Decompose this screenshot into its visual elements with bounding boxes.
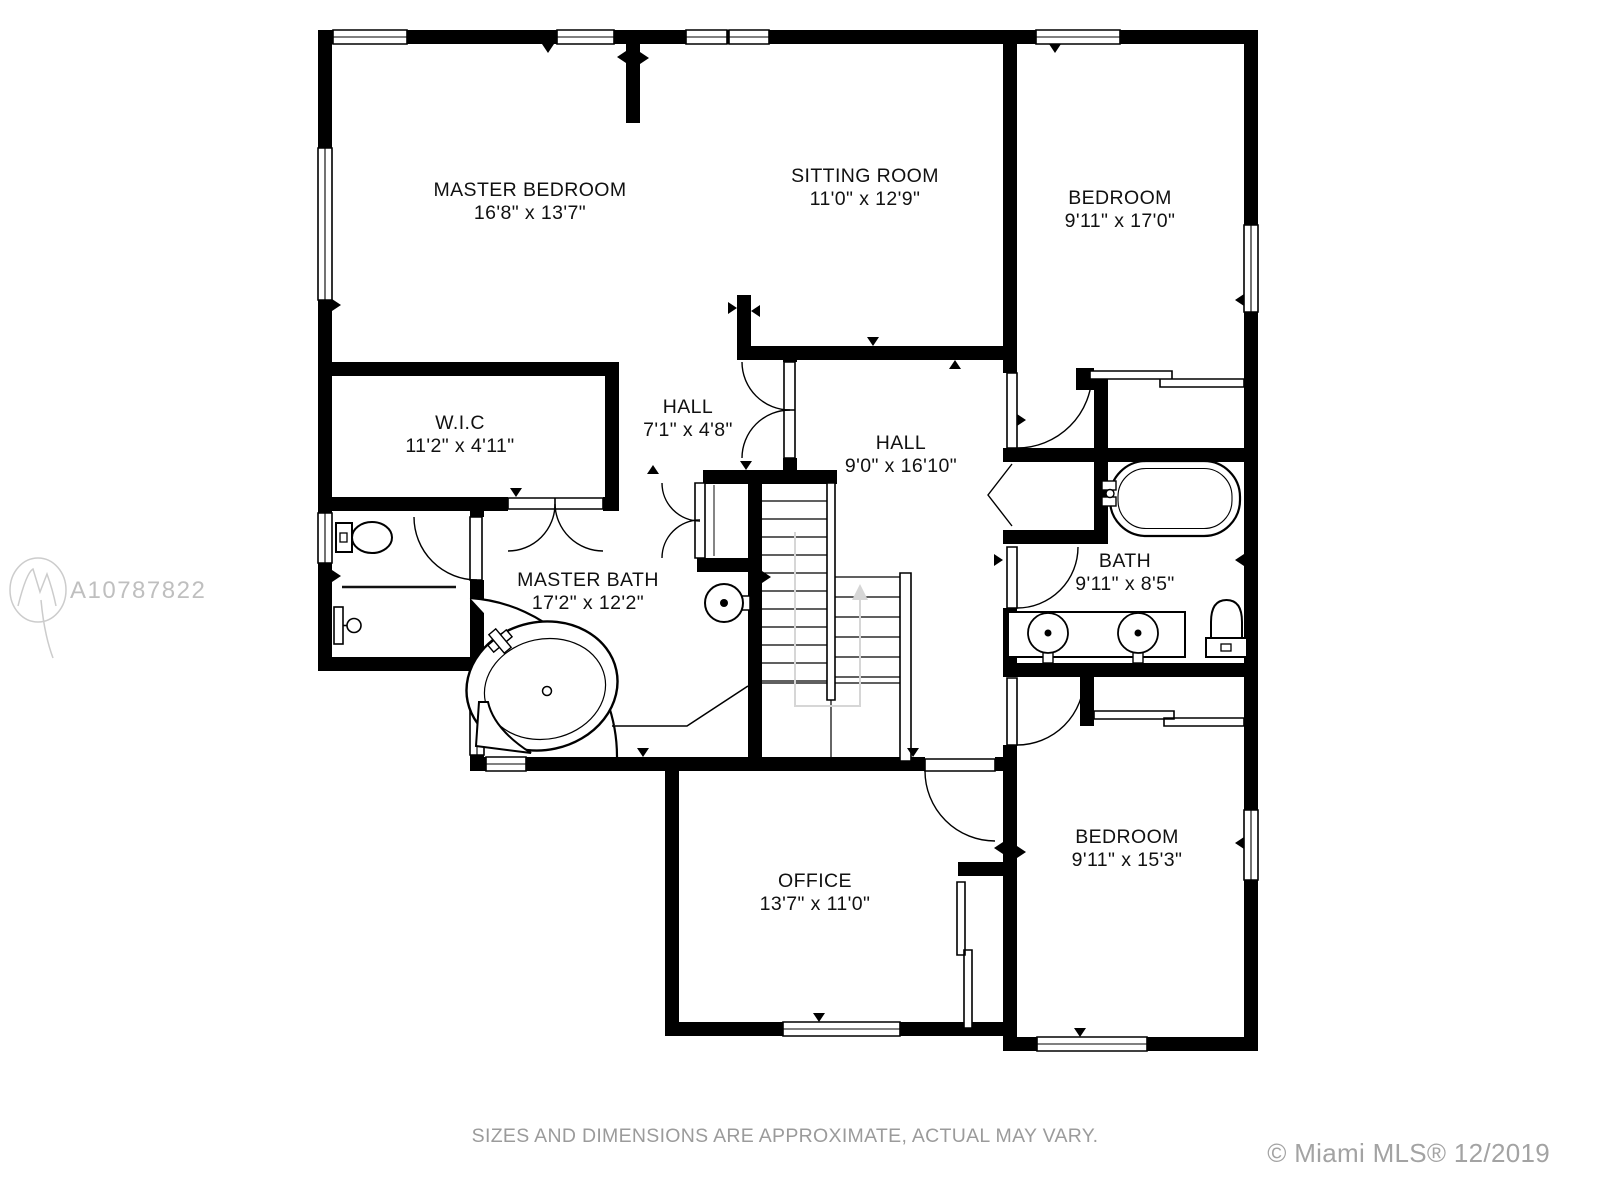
mls-logo-icon [10,558,66,622]
staircase [762,483,911,761]
room-dims-sitting-room: 11'0" x 12'9" [810,188,921,210]
room-dims-bath: 9'11" x 8'5" [1075,573,1174,595]
room-dims-office: 13'7" x 11'0" [760,893,871,915]
floorplan-svg: MASTER BEDROOM 16'8" x 13'7" SITTING ROO… [0,0,1600,1200]
room-label-master-bath: MASTER BATH [517,569,659,591]
double-vanity-fixture [1008,612,1185,663]
room-dims-wic: 11'2" x 4'11" [405,435,514,457]
room-dims-master-bedroom: 16'8" x 13'7" [474,202,586,224]
room-label-bedroom-top: BEDROOM [1068,187,1172,209]
room-label-bedroom-bottom: BEDROOM [1075,826,1179,848]
room-dims-hall-main: 9'0" x 16'10" [845,455,957,477]
room-dims-bedroom-top: 9'11" x 17'0" [1065,210,1176,232]
disclaimer-text: SIZES AND DIMENSIONS ARE APPROXIMATE, AC… [472,1125,1099,1147]
corner-tub-fixture [454,598,748,764]
bifold-closet-doors-icon [988,464,1012,526]
shower-head-icon [334,607,361,644]
watermark: A10787822 [10,558,206,658]
mls-credit-text: © Miami MLS® 12/2019 [1267,1138,1550,1168]
bathtub-fixture [1102,461,1240,536]
room-label-bath: BATH [1099,550,1151,572]
toilet-fixture-bath [1206,600,1247,657]
room-dims-hall-small: 7'1" x 4'8" [643,419,733,441]
room-label-hall-main: HALL [876,432,926,454]
pedestal-sink-fixture [705,584,750,622]
room-label-master-bedroom: MASTER BEDROOM [433,179,626,201]
room-label-sitting-room: SITTING ROOM [791,165,939,187]
room-label-office: OFFICE [778,870,852,892]
stair-up-arrow-icon [852,584,868,600]
room-dims-master-bath: 17'2" x 12'2" [532,592,644,614]
watermark-id: A10787822 [70,577,206,604]
room-label-wic: W.I.C [435,412,485,434]
stair-railing [827,483,911,761]
floorplan-page: MASTER BEDROOM 16'8" x 13'7" SITTING ROO… [0,0,1600,1200]
room-label-hall-small: HALL [663,396,713,418]
toilet-fixture-wc [336,522,392,553]
mls-logo-mountain-icon [18,569,56,658]
room-dims-bedroom-bottom: 9'11" x 15'3" [1072,849,1183,871]
